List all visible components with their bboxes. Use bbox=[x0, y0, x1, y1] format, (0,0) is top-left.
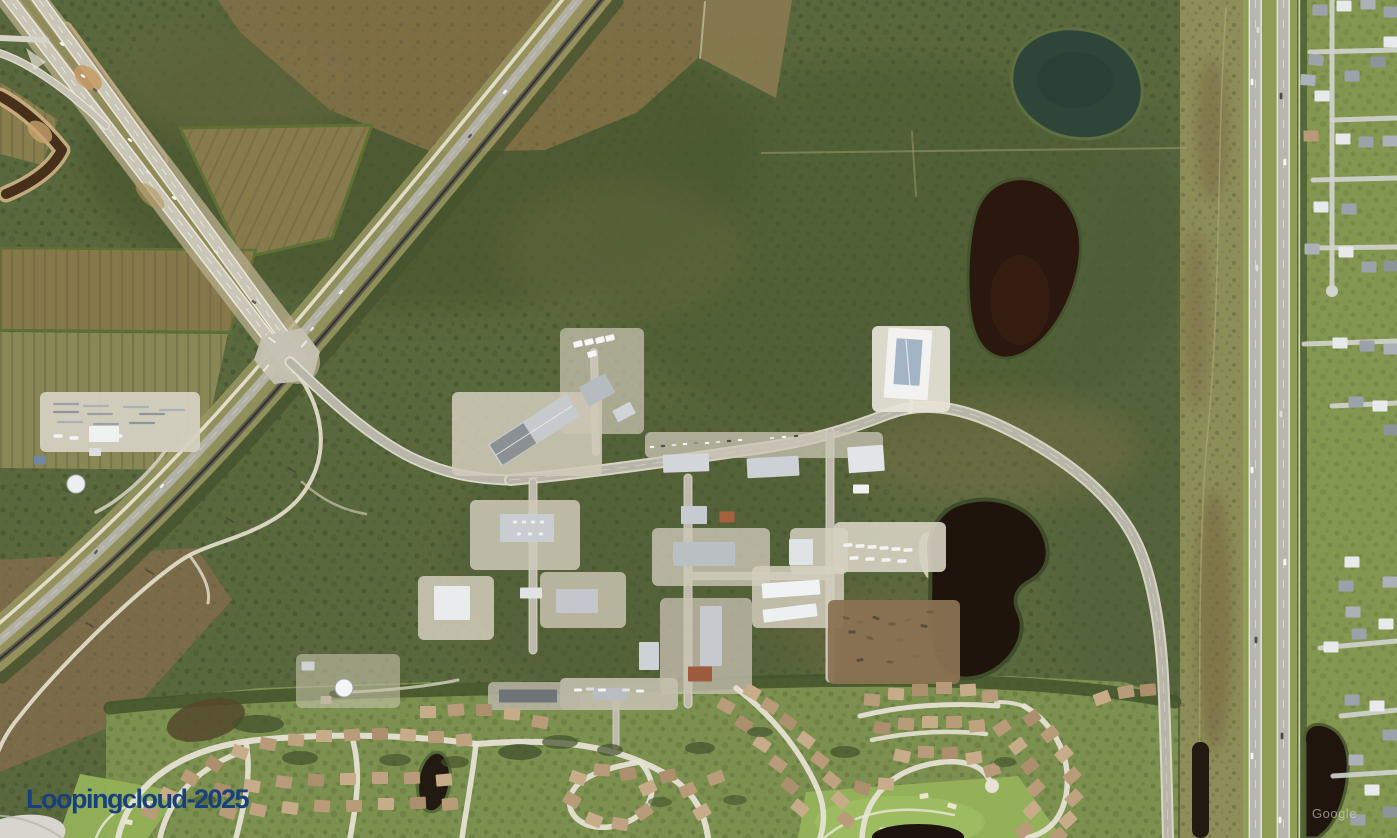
street-east bbox=[1313, 178, 1397, 180]
street-east bbox=[1310, 50, 1397, 52]
house bbox=[888, 688, 905, 701]
house-east bbox=[1362, 262, 1377, 273]
house-east bbox=[1305, 244, 1320, 255]
highway-edge-line bbox=[1249, 0, 1250, 838]
warehouse bbox=[556, 589, 598, 613]
warehouse bbox=[639, 642, 659, 670]
west-spur-road bbox=[0, 38, 46, 40]
house bbox=[410, 797, 427, 810]
house bbox=[420, 706, 436, 718]
scrap-debris bbox=[849, 631, 856, 634]
tree-clump bbox=[747, 727, 773, 737]
house-east bbox=[1384, 344, 1397, 355]
tree-clump bbox=[232, 715, 284, 733]
satellite-screenshot: Loopingcloud-2025 Google bbox=[0, 0, 1397, 838]
house-east bbox=[1379, 619, 1394, 630]
house-east bbox=[1383, 136, 1397, 147]
pipe-stack bbox=[139, 413, 165, 415]
street-east bbox=[1332, 118, 1397, 120]
house-east bbox=[1349, 397, 1364, 408]
street-east bbox=[1304, 341, 1397, 344]
house-east bbox=[1345, 557, 1360, 568]
rooftop-unit bbox=[531, 521, 535, 524]
parked-car bbox=[738, 439, 743, 442]
house bbox=[288, 733, 305, 746]
pipe-stack bbox=[53, 411, 79, 413]
house-east bbox=[1336, 134, 1351, 145]
rooftop-unit bbox=[528, 533, 532, 536]
trailer bbox=[881, 558, 890, 562]
tree-clump bbox=[498, 744, 542, 760]
house bbox=[873, 721, 891, 735]
dark-roof-building bbox=[499, 690, 557, 703]
rooftop-unit bbox=[522, 521, 526, 524]
trailer bbox=[903, 548, 912, 552]
trailer bbox=[891, 547, 900, 551]
shed bbox=[89, 448, 101, 456]
house bbox=[456, 733, 473, 746]
pond-ditch-strip bbox=[1192, 742, 1209, 838]
house bbox=[936, 682, 952, 694]
shed bbox=[321, 696, 332, 704]
house bbox=[372, 772, 388, 784]
pond-green-deep bbox=[1037, 52, 1113, 108]
house-east bbox=[1339, 581, 1354, 592]
house bbox=[344, 728, 361, 741]
house bbox=[922, 716, 938, 728]
parked-car bbox=[705, 442, 710, 445]
house bbox=[898, 717, 915, 730]
house-east bbox=[1384, 425, 1397, 436]
house-east bbox=[1339, 247, 1354, 258]
house bbox=[476, 704, 492, 716]
parked-car bbox=[683, 443, 688, 446]
house-east bbox=[1313, 5, 1328, 16]
house-east bbox=[1324, 642, 1339, 653]
house-east bbox=[1300, 74, 1316, 86]
house bbox=[1140, 683, 1157, 696]
house bbox=[400, 728, 417, 741]
pipe-stack bbox=[159, 409, 185, 411]
house bbox=[428, 731, 444, 743]
house bbox=[912, 684, 928, 696]
house-east bbox=[1349, 755, 1364, 766]
tree-clump bbox=[282, 751, 318, 765]
house-east bbox=[1384, 7, 1397, 18]
parked-car bbox=[650, 446, 655, 449]
scrap-debris bbox=[936, 648, 943, 652]
tree-clump bbox=[379, 754, 411, 766]
house bbox=[968, 719, 985, 733]
trailer bbox=[879, 546, 888, 550]
house bbox=[372, 728, 388, 740]
house bbox=[378, 798, 394, 810]
house bbox=[436, 773, 453, 786]
house-east bbox=[1384, 261, 1397, 272]
house-east bbox=[1370, 701, 1385, 712]
blue-roof-shed bbox=[34, 456, 46, 465]
scrap-debris bbox=[889, 623, 896, 626]
parked-car bbox=[727, 440, 732, 443]
house bbox=[946, 716, 962, 729]
tree-clump bbox=[685, 742, 715, 754]
pipe-stack bbox=[83, 405, 109, 407]
margin-marsh bbox=[1182, 230, 1210, 410]
warehouse bbox=[789, 539, 813, 565]
house-east bbox=[1333, 338, 1348, 349]
house bbox=[878, 777, 895, 790]
highway-edge-line bbox=[1277, 0, 1278, 838]
tree-clump bbox=[994, 757, 1016, 767]
house-east bbox=[1308, 54, 1324, 67]
truck bbox=[586, 688, 594, 691]
water-tower bbox=[335, 679, 353, 697]
house-east bbox=[1337, 1, 1352, 12]
truck bbox=[54, 434, 63, 438]
warehouse bbox=[681, 506, 707, 524]
house-east bbox=[1304, 131, 1319, 142]
scrap-debris bbox=[927, 611, 934, 614]
map-attribution: Google bbox=[1312, 806, 1357, 821]
house bbox=[448, 703, 465, 716]
trailer bbox=[843, 543, 852, 547]
sidewalk-line bbox=[1299, 0, 1301, 838]
marsh-patch bbox=[500, 180, 740, 320]
highway-vehicle bbox=[1279, 817, 1282, 824]
house bbox=[281, 801, 299, 815]
truck bbox=[598, 689, 606, 692]
pipe-stack bbox=[87, 413, 113, 415]
house-east bbox=[1384, 37, 1397, 48]
pipe-stack bbox=[129, 422, 155, 424]
highway-vehicle bbox=[1251, 753, 1254, 760]
scrap-debris bbox=[856, 620, 863, 624]
house bbox=[314, 799, 331, 812]
warehouse bbox=[500, 514, 554, 542]
warehouse-vertical bbox=[700, 606, 722, 666]
tree-clump bbox=[830, 746, 860, 758]
pond-dark-red-center bbox=[990, 255, 1050, 345]
pipe-stack bbox=[123, 406, 149, 408]
house bbox=[404, 772, 421, 785]
parked-car bbox=[672, 444, 677, 447]
house-east bbox=[1360, 341, 1375, 352]
tree-clump bbox=[723, 795, 747, 805]
satellite-map bbox=[0, 0, 1397, 838]
tree-clump bbox=[542, 735, 578, 749]
parked-car bbox=[661, 445, 666, 448]
highway-edge-line bbox=[1288, 0, 1289, 838]
pipe-stack bbox=[53, 403, 79, 405]
dirt-yard bbox=[828, 600, 960, 684]
highway-vehicle bbox=[1280, 93, 1283, 100]
truck bbox=[622, 689, 630, 692]
truck bbox=[574, 689, 582, 692]
rust-roof-building bbox=[720, 512, 735, 523]
tree-clump bbox=[648, 797, 672, 807]
house-east bbox=[1345, 695, 1360, 706]
shed bbox=[302, 662, 315, 671]
house bbox=[316, 730, 332, 742]
house-east bbox=[1314, 202, 1329, 213]
pipe-stack bbox=[57, 421, 83, 423]
highway-vehicle bbox=[1284, 559, 1287, 566]
scrap-debris bbox=[912, 654, 919, 657]
cul-de-sac bbox=[1326, 285, 1338, 297]
rooftop-unit bbox=[517, 533, 521, 536]
highway-vehicle bbox=[1257, 27, 1260, 34]
house bbox=[340, 773, 356, 785]
house bbox=[918, 746, 934, 759]
house bbox=[942, 746, 959, 759]
trailer bbox=[867, 545, 876, 549]
dome-house bbox=[67, 475, 85, 493]
house bbox=[594, 763, 611, 776]
parked-car bbox=[694, 442, 699, 445]
tree-clump bbox=[597, 744, 623, 756]
warehouse bbox=[673, 542, 735, 566]
trailer bbox=[865, 557, 874, 561]
house-east bbox=[1371, 57, 1386, 68]
margin-marsh bbox=[1196, 60, 1228, 200]
house bbox=[864, 693, 881, 706]
highway-vehicle bbox=[1281, 733, 1284, 740]
house-east bbox=[1342, 204, 1357, 215]
warehouse-white bbox=[434, 586, 470, 620]
warehouse bbox=[663, 453, 710, 473]
shed bbox=[520, 588, 542, 599]
parking-strip bbox=[645, 432, 883, 458]
cul-de-sac bbox=[985, 779, 999, 793]
house-east bbox=[1352, 629, 1367, 640]
house bbox=[275, 775, 293, 789]
house bbox=[982, 689, 999, 702]
house-east bbox=[1383, 577, 1397, 588]
trailer bbox=[897, 559, 906, 563]
house-east bbox=[1345, 71, 1360, 82]
house bbox=[346, 800, 362, 812]
pipe-stack bbox=[93, 423, 119, 425]
tree-clump bbox=[441, 756, 469, 768]
house-east bbox=[1359, 137, 1374, 148]
parked-car bbox=[782, 436, 787, 439]
house bbox=[308, 773, 325, 786]
house-east bbox=[1373, 401, 1388, 412]
parked-car bbox=[716, 441, 721, 444]
house-east bbox=[1383, 730, 1397, 741]
highway-vehicle bbox=[1284, 159, 1287, 166]
shed-white bbox=[89, 426, 119, 442]
rooftop-unit bbox=[539, 533, 543, 536]
rooftop-unit bbox=[540, 521, 544, 524]
highway-vehicle bbox=[1251, 79, 1254, 86]
house-east bbox=[1361, 0, 1376, 10]
watermark-text: Loopingcloud-2025 bbox=[26, 784, 248, 815]
truck bbox=[70, 436, 79, 440]
highway-vehicle bbox=[1280, 411, 1283, 418]
warehouse bbox=[747, 456, 800, 479]
house-east bbox=[1383, 807, 1397, 818]
shed bbox=[853, 485, 869, 494]
house-east bbox=[1346, 607, 1361, 618]
highway-vehicle bbox=[1256, 265, 1259, 272]
parked-car bbox=[770, 437, 775, 440]
trailer-yard bbox=[834, 522, 946, 572]
house bbox=[504, 707, 521, 720]
trailer bbox=[855, 544, 864, 548]
highway-vehicle bbox=[1251, 467, 1254, 474]
house bbox=[442, 797, 459, 810]
parked-car bbox=[794, 435, 799, 438]
house bbox=[960, 684, 977, 697]
trailer bbox=[849, 556, 858, 560]
house-east bbox=[1315, 91, 1330, 102]
rooftop-unit bbox=[513, 521, 517, 524]
tile-roof-building bbox=[688, 667, 712, 682]
truck bbox=[636, 690, 644, 693]
warehouse bbox=[847, 445, 885, 473]
highway-edge-line bbox=[1260, 0, 1261, 838]
house-east bbox=[1365, 785, 1380, 796]
highway-vehicle bbox=[1255, 637, 1258, 644]
